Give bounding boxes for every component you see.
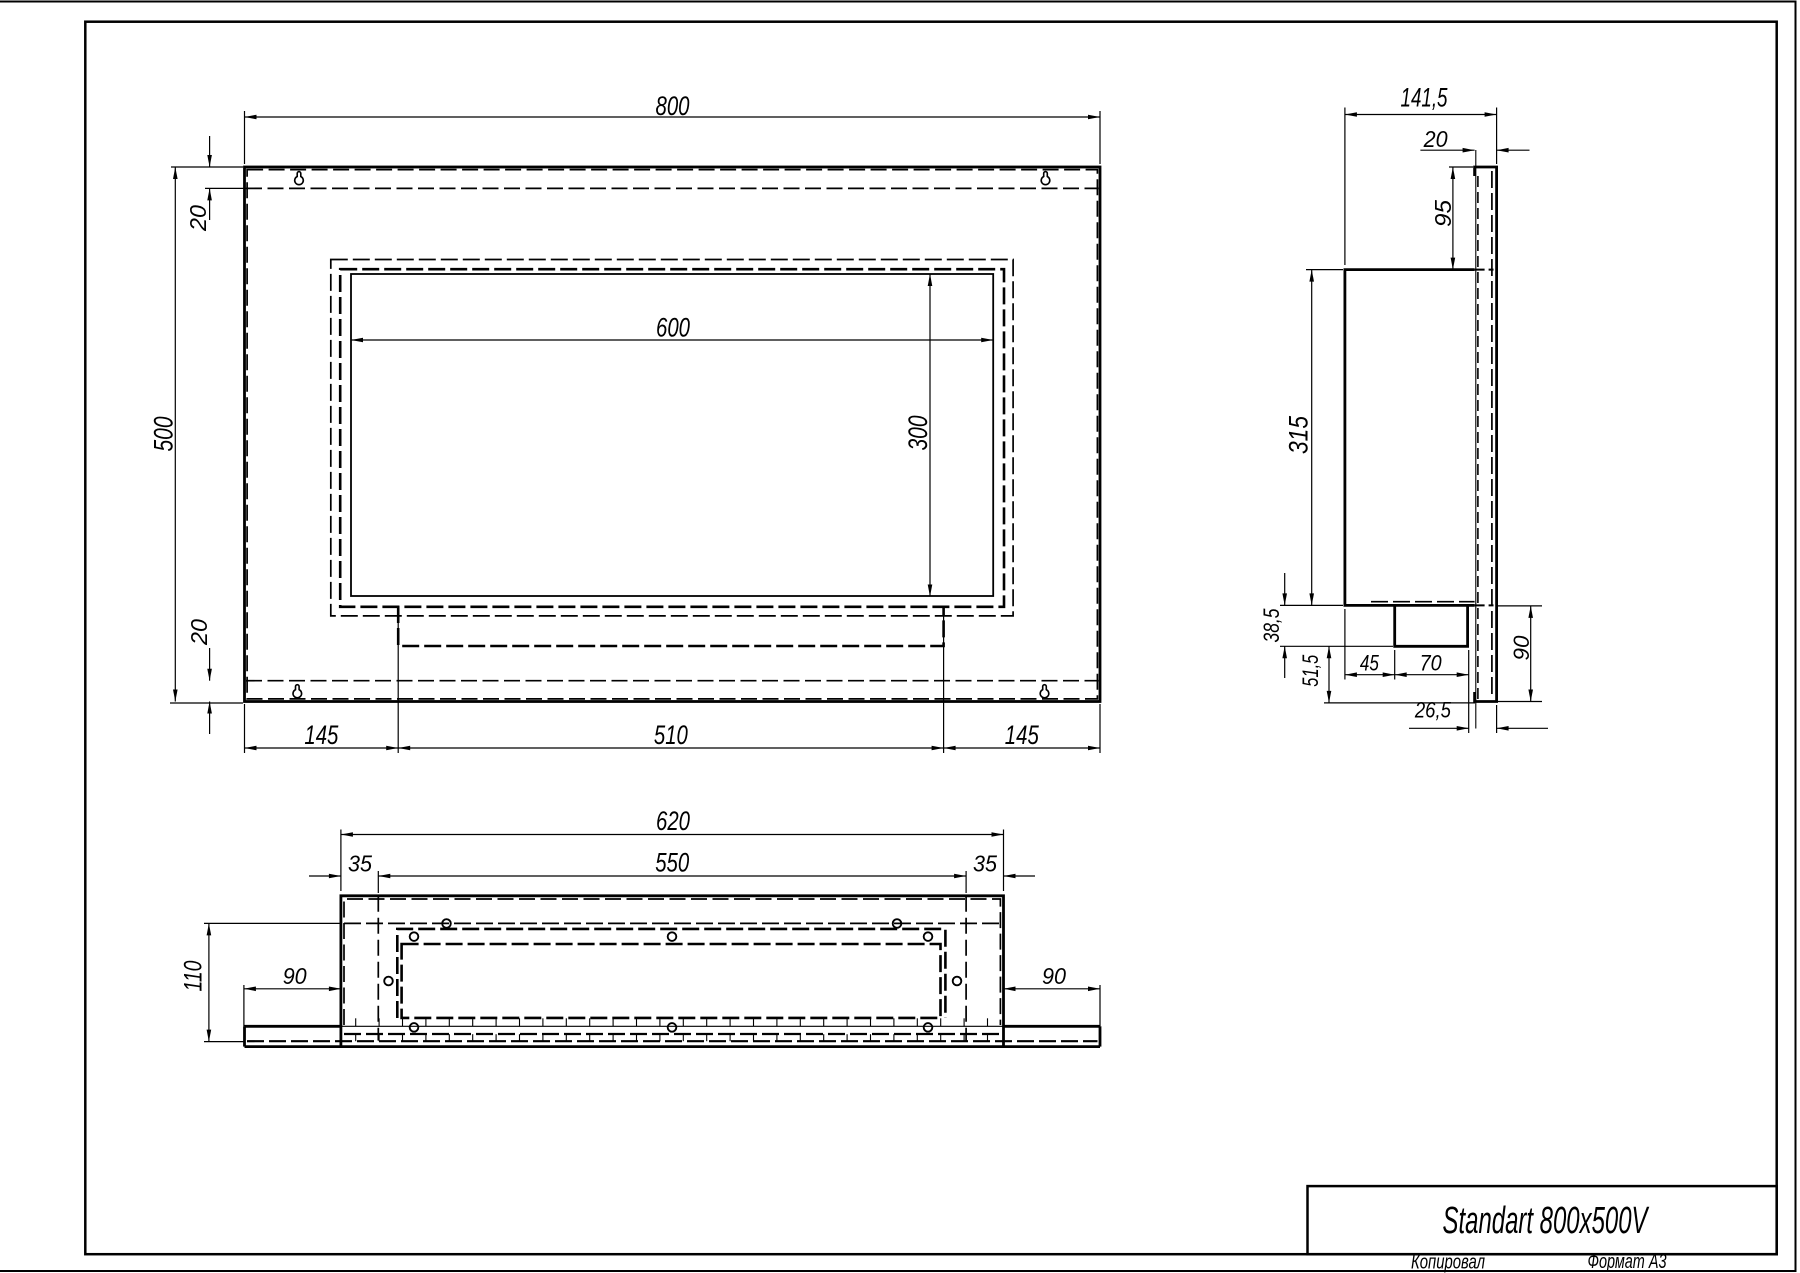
svg-text:500: 500	[149, 417, 179, 452]
svg-text:Копировал: Копировал	[1411, 1252, 1485, 1273]
svg-text:510: 510	[654, 720, 688, 750]
svg-text:600: 600	[656, 313, 690, 343]
svg-text:20: 20	[185, 205, 211, 232]
svg-text:70: 70	[1420, 650, 1443, 675]
svg-text:26,5: 26,5	[1414, 698, 1451, 723]
svg-text:110: 110	[180, 960, 208, 991]
svg-text:Формат А3: Формат А3	[1588, 1251, 1667, 1273]
svg-text:145: 145	[304, 720, 339, 750]
svg-text:550: 550	[655, 848, 689, 878]
svg-text:35: 35	[973, 851, 997, 877]
svg-text:315: 315	[1284, 415, 1314, 454]
svg-text:20: 20	[1423, 126, 1448, 152]
svg-text:95: 95	[1430, 200, 1456, 227]
svg-text:45: 45	[1360, 650, 1380, 675]
svg-text:51,5: 51,5	[1298, 654, 1323, 687]
svg-text:Standart 800x500V: Standart 800x500V	[1443, 1200, 1650, 1242]
svg-text:141,5: 141,5	[1401, 83, 1449, 113]
svg-text:35: 35	[348, 851, 372, 877]
svg-text:90: 90	[1509, 635, 1534, 661]
svg-text:800: 800	[656, 91, 690, 121]
svg-text:145: 145	[1005, 720, 1040, 750]
svg-text:90: 90	[1042, 963, 1066, 989]
svg-text:38,5: 38,5	[1259, 608, 1284, 643]
svg-text:90: 90	[283, 963, 307, 989]
svg-text:620: 620	[656, 806, 690, 836]
svg-text:300: 300	[903, 416, 933, 451]
svg-text:20: 20	[186, 619, 212, 646]
